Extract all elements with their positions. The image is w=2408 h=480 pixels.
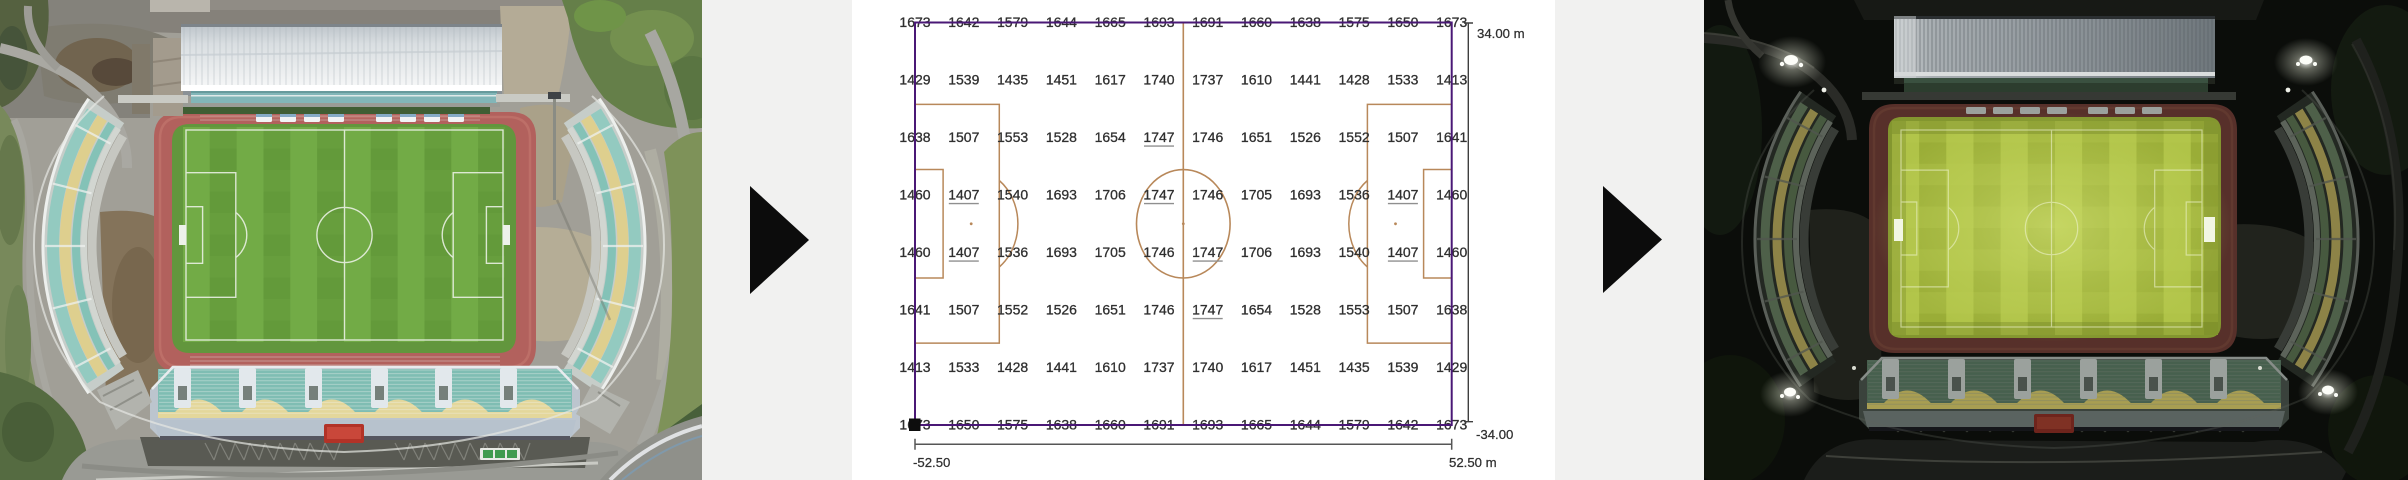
- svg-text:1507: 1507: [948, 129, 979, 145]
- svg-text:1693: 1693: [1046, 244, 1077, 260]
- svg-text:1705: 1705: [1241, 187, 1272, 203]
- svg-text:1507: 1507: [948, 302, 979, 318]
- svg-text:1610: 1610: [1095, 359, 1126, 375]
- svg-text:1654: 1654: [1241, 302, 1272, 318]
- svg-text:1654: 1654: [1095, 129, 1126, 145]
- svg-text:1746: 1746: [1143, 302, 1174, 318]
- svg-text:34.00 m: 34.00 m: [1477, 26, 1525, 41]
- svg-text:1451: 1451: [1046, 72, 1077, 88]
- svg-text:1428: 1428: [997, 359, 1028, 375]
- svg-text:1428: 1428: [1339, 72, 1370, 88]
- svg-text:1407: 1407: [948, 187, 979, 203]
- svg-text:1693: 1693: [1046, 187, 1077, 203]
- svg-text:1441: 1441: [1290, 72, 1321, 88]
- svg-text:1617: 1617: [1241, 359, 1272, 375]
- svg-text:1693: 1693: [1290, 187, 1321, 203]
- svg-text:1746: 1746: [1192, 129, 1223, 145]
- svg-text:1539: 1539: [948, 72, 979, 88]
- svg-text:1617: 1617: [1095, 72, 1126, 88]
- svg-text:1526: 1526: [1046, 302, 1077, 318]
- svg-text:1507: 1507: [1387, 302, 1418, 318]
- svg-text:1747: 1747: [1143, 129, 1174, 145]
- svg-text:1737: 1737: [1192, 72, 1223, 88]
- svg-text:1540: 1540: [1339, 244, 1370, 260]
- svg-text:1553: 1553: [997, 129, 1028, 145]
- svg-text:1747: 1747: [1192, 302, 1223, 318]
- svg-text:1507: 1507: [1387, 129, 1418, 145]
- svg-text:-52.50: -52.50: [913, 455, 950, 470]
- svg-text:1533: 1533: [1387, 72, 1418, 88]
- svg-text:1746: 1746: [1143, 244, 1174, 260]
- svg-text:1435: 1435: [997, 72, 1028, 88]
- svg-text:1536: 1536: [1339, 187, 1370, 203]
- svg-text:1737: 1737: [1143, 359, 1174, 375]
- svg-text:1407: 1407: [948, 244, 979, 260]
- svg-text:1747: 1747: [1143, 187, 1174, 203]
- svg-text:1740: 1740: [1192, 359, 1223, 375]
- svg-text:1528: 1528: [1046, 129, 1077, 145]
- svg-text:1435: 1435: [1339, 359, 1370, 375]
- svg-text:1407: 1407: [1387, 187, 1418, 203]
- svg-text:1706: 1706: [1095, 187, 1126, 203]
- svg-text:1651: 1651: [1241, 129, 1272, 145]
- svg-text:1451: 1451: [1290, 359, 1321, 375]
- svg-text:1441: 1441: [1046, 359, 1077, 375]
- svg-text:1528: 1528: [1290, 302, 1321, 318]
- svg-text:1540: 1540: [997, 187, 1028, 203]
- svg-text:1705: 1705: [1095, 244, 1126, 260]
- svg-text:1651: 1651: [1095, 302, 1126, 318]
- svg-text:1552: 1552: [997, 302, 1028, 318]
- svg-text:1407: 1407: [1387, 244, 1418, 260]
- svg-text:1536: 1536: [997, 244, 1028, 260]
- svg-text:1553: 1553: [1339, 302, 1370, 318]
- svg-text:52.50 m: 52.50 m: [1449, 455, 1497, 470]
- svg-text:1539: 1539: [1387, 359, 1418, 375]
- svg-text:1747: 1747: [1192, 244, 1223, 260]
- svg-text:1526: 1526: [1290, 129, 1321, 145]
- svg-text:1552: 1552: [1339, 129, 1370, 145]
- svg-text:1693: 1693: [1290, 244, 1321, 260]
- svg-text:1533: 1533: [948, 359, 979, 375]
- svg-text:1746: 1746: [1192, 187, 1223, 203]
- svg-text:-34.00: -34.00: [1476, 427, 1513, 442]
- svg-text:1706: 1706: [1241, 244, 1272, 260]
- svg-text:1740: 1740: [1143, 72, 1174, 88]
- svg-text:1610: 1610: [1241, 72, 1272, 88]
